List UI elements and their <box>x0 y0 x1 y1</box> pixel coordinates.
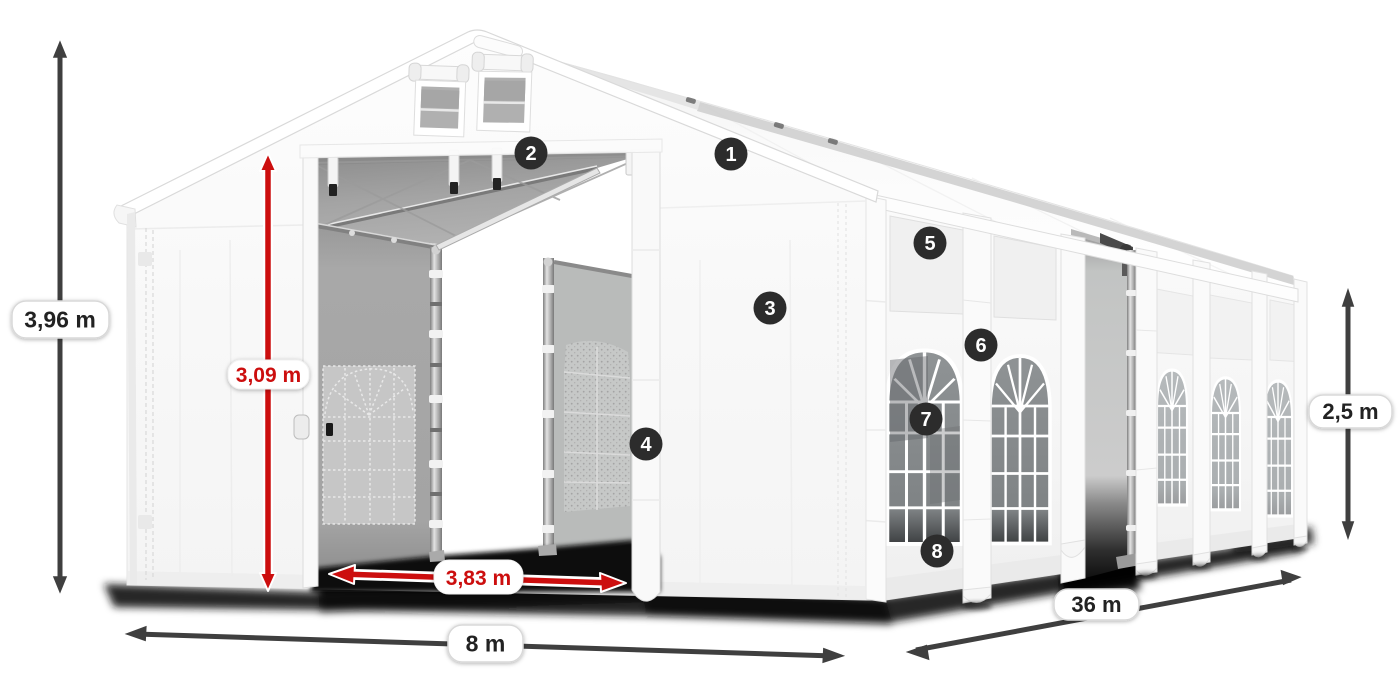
svg-text:8: 8 <box>931 541 942 563</box>
svg-text:1: 1 <box>725 144 736 166</box>
svg-text:6: 6 <box>975 335 986 357</box>
svg-text:3,83 m: 3,83 m <box>446 567 511 590</box>
svg-text:2,5 m: 2,5 m <box>1322 399 1378 424</box>
svg-text:3,96 m: 3,96 m <box>24 307 96 333</box>
svg-text:2: 2 <box>525 143 536 165</box>
svg-text:3,09 m: 3,09 m <box>236 364 301 387</box>
svg-text:7: 7 <box>920 409 931 431</box>
svg-text:5: 5 <box>924 233 935 255</box>
svg-text:3: 3 <box>764 298 775 320</box>
svg-text:8 m: 8 m <box>466 631 506 657</box>
svg-text:4: 4 <box>640 434 652 456</box>
svg-text:36 m: 36 m <box>1071 592 1121 617</box>
